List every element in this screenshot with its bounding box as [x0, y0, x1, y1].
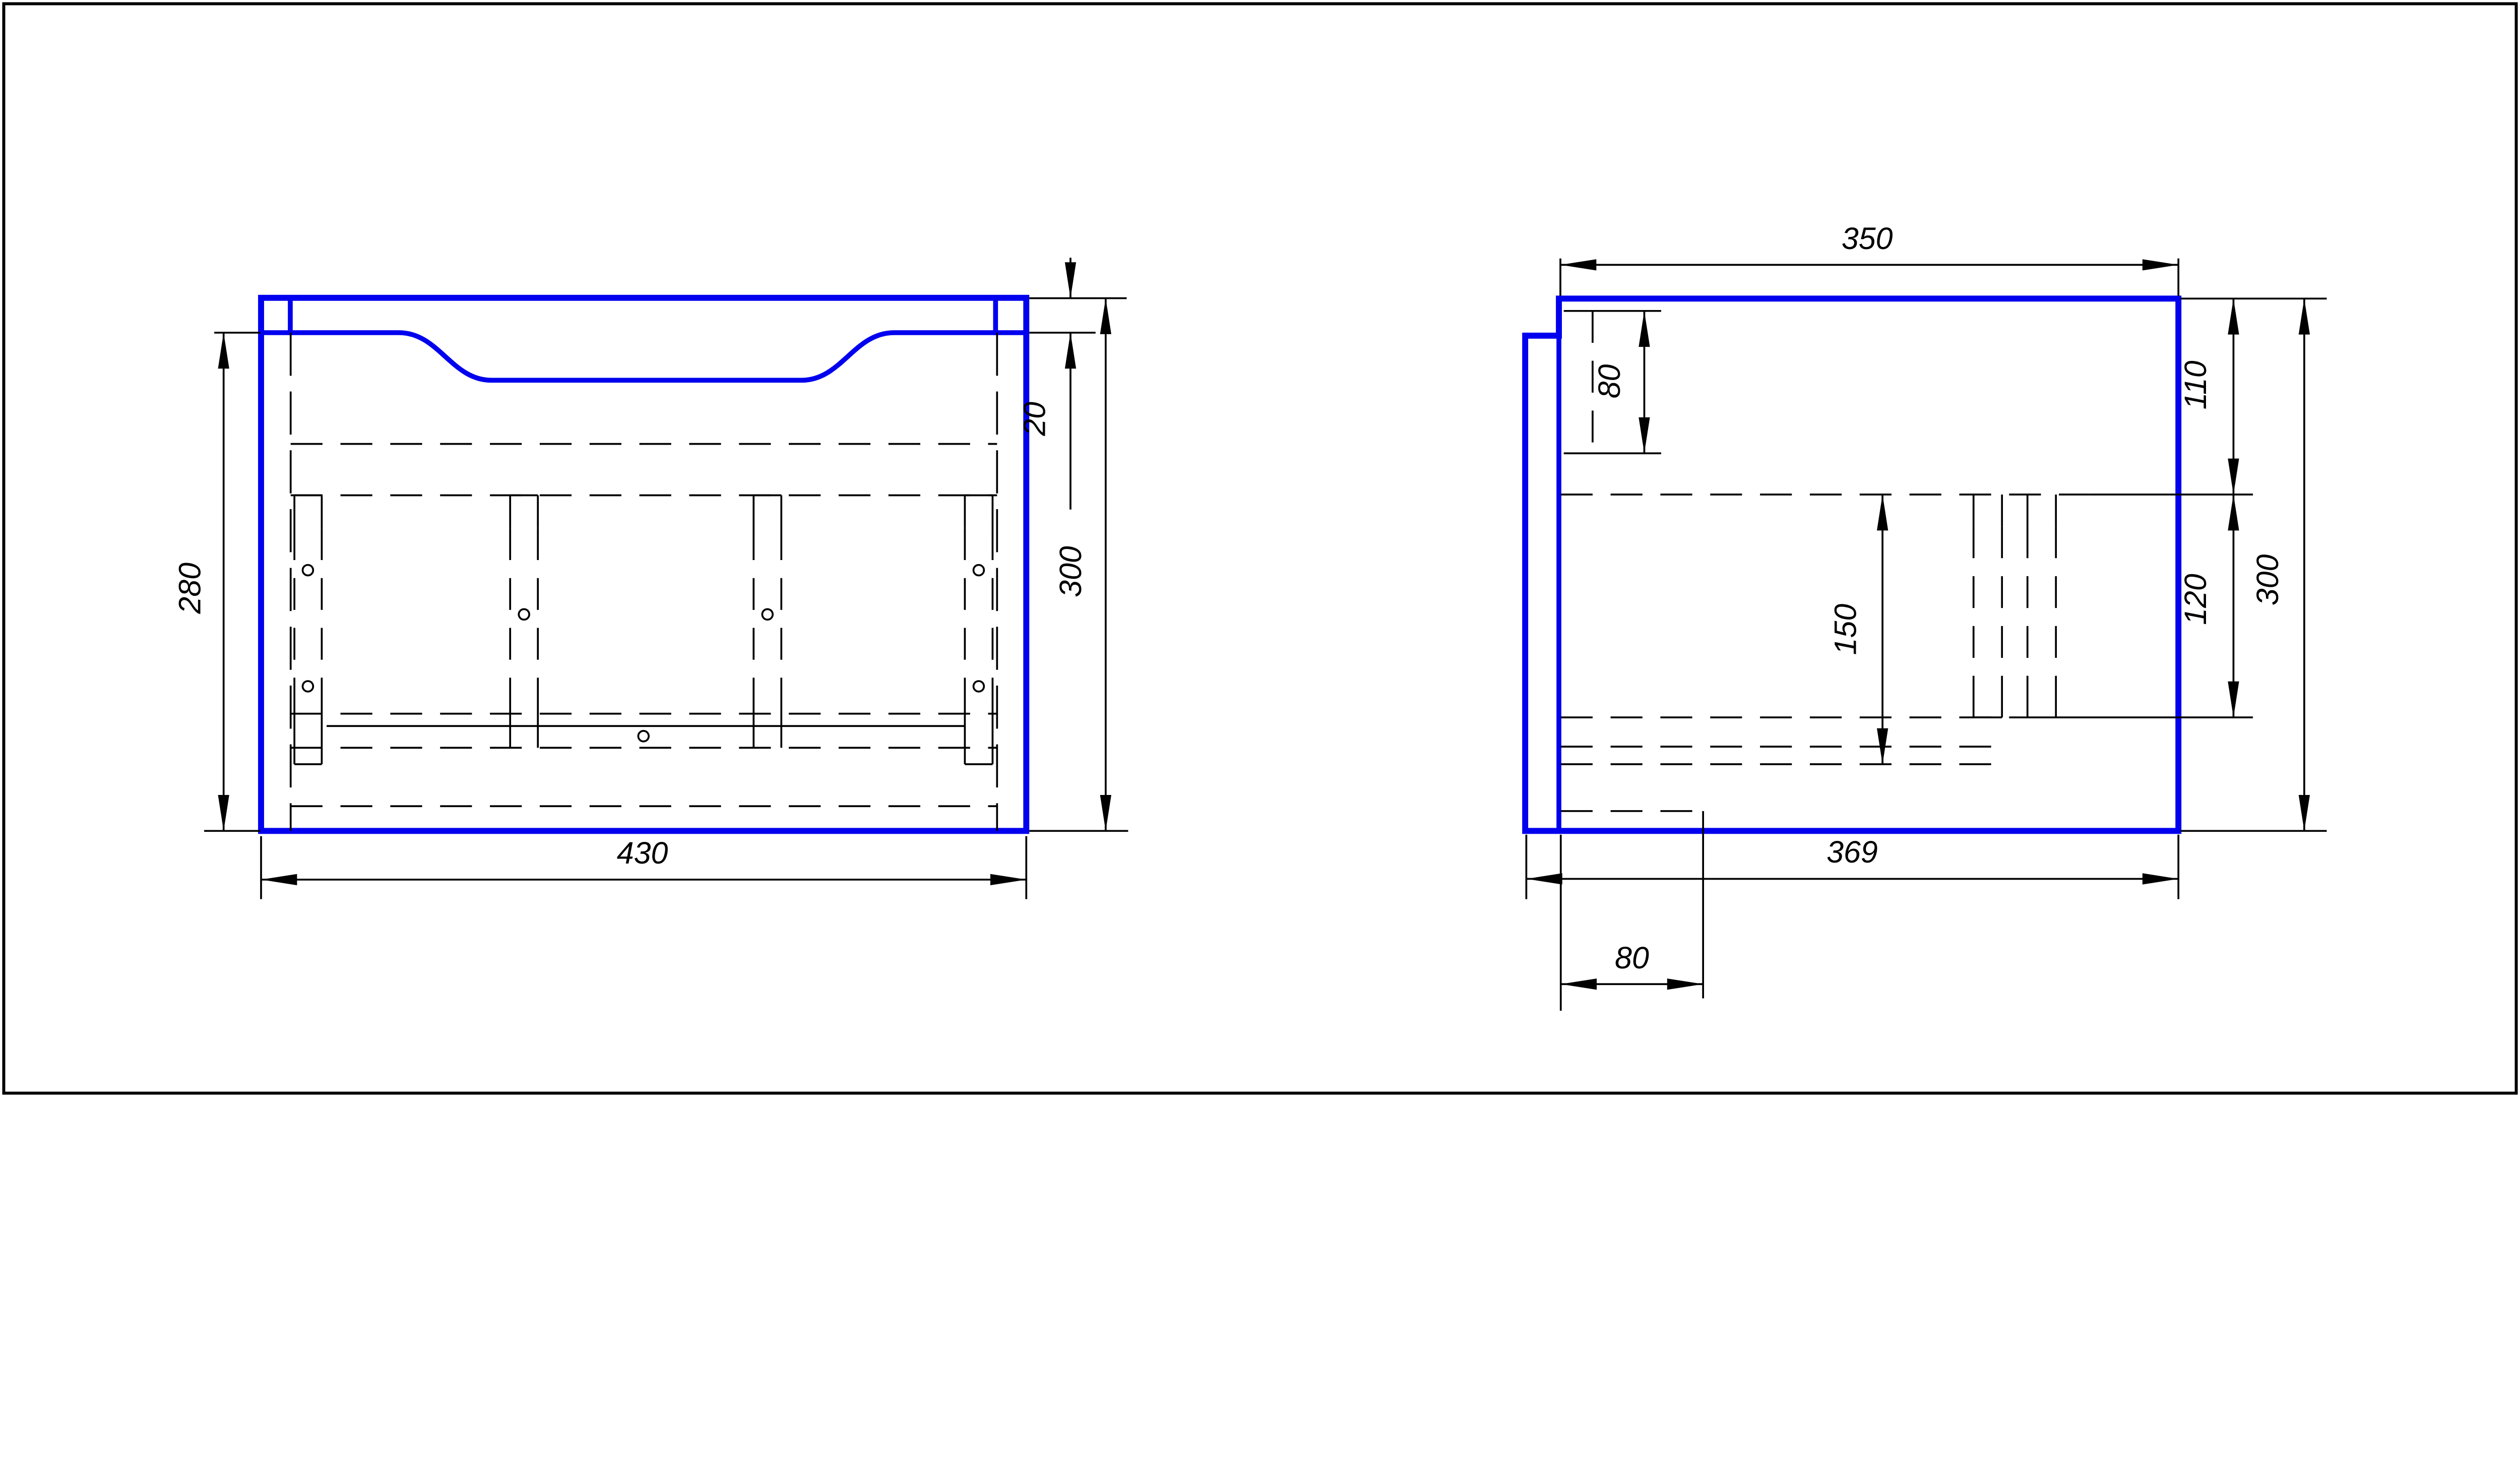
- front-top-recess-line: [261, 333, 1026, 380]
- front-view: 280 430 20 300: [173, 258, 1128, 899]
- dim-side-top-offset: 80: [1564, 311, 1661, 453]
- dim-label-300-side: 300: [2250, 554, 2285, 605]
- dim-label-80-bottom: 80: [1615, 941, 1649, 975]
- dim-side-top-width: 350: [1560, 221, 2178, 296]
- hole: [973, 681, 984, 692]
- dim-front-height: 300: [1029, 298, 1128, 831]
- dim-front-inner-height: 280: [173, 333, 261, 831]
- front-view-outline: [261, 298, 1026, 831]
- hole: [973, 565, 984, 576]
- side-view: 350 80 110 120 150 300: [1525, 221, 2326, 1011]
- hole: [762, 609, 773, 620]
- dim-front-width: 430: [261, 836, 1026, 899]
- dim-label-350: 350: [1842, 221, 1893, 256]
- dim-label-150: 150: [1828, 604, 1862, 655]
- dim-label-280: 280: [173, 563, 207, 614]
- dim-side-bottom-offset: 80: [1561, 835, 1703, 1011]
- hole: [519, 609, 529, 620]
- dim-label-20: 20: [1017, 402, 1051, 437]
- sheet-border: [4, 4, 2516, 1093]
- dim-label-300-front: 300: [1053, 546, 1088, 597]
- dim-label-110: 110: [2178, 360, 2213, 409]
- dim-front-top-band: 20: [1017, 258, 1126, 509]
- hole: [302, 565, 313, 576]
- dim-side-bottom-width: 369: [1526, 835, 2178, 899]
- drawing-sheet: 280 430 20 300: [0, 0, 2520, 1097]
- hole: [638, 731, 649, 742]
- dim-side-inner-height: 150: [1828, 495, 1882, 764]
- cad-drawing: 280 430 20 300: [0, 0, 2520, 1097]
- side-view-hidden-lines: [1561, 311, 2253, 999]
- dim-label-80-top: 80: [1592, 364, 1626, 399]
- front-outer-box: [261, 298, 1026, 831]
- dim-label-369: 369: [1826, 835, 1878, 869]
- dim-label-430: 430: [617, 836, 668, 870]
- front-view-hidden-lines: [291, 333, 997, 831]
- side-view-partitions: [1974, 495, 2056, 717]
- hole: [302, 681, 313, 692]
- front-view-partitions: [294, 495, 992, 764]
- front-view-holes: [302, 565, 984, 742]
- dim-side-middle-height: 120: [2178, 495, 2233, 717]
- dim-label-120: 120: [2178, 574, 2213, 625]
